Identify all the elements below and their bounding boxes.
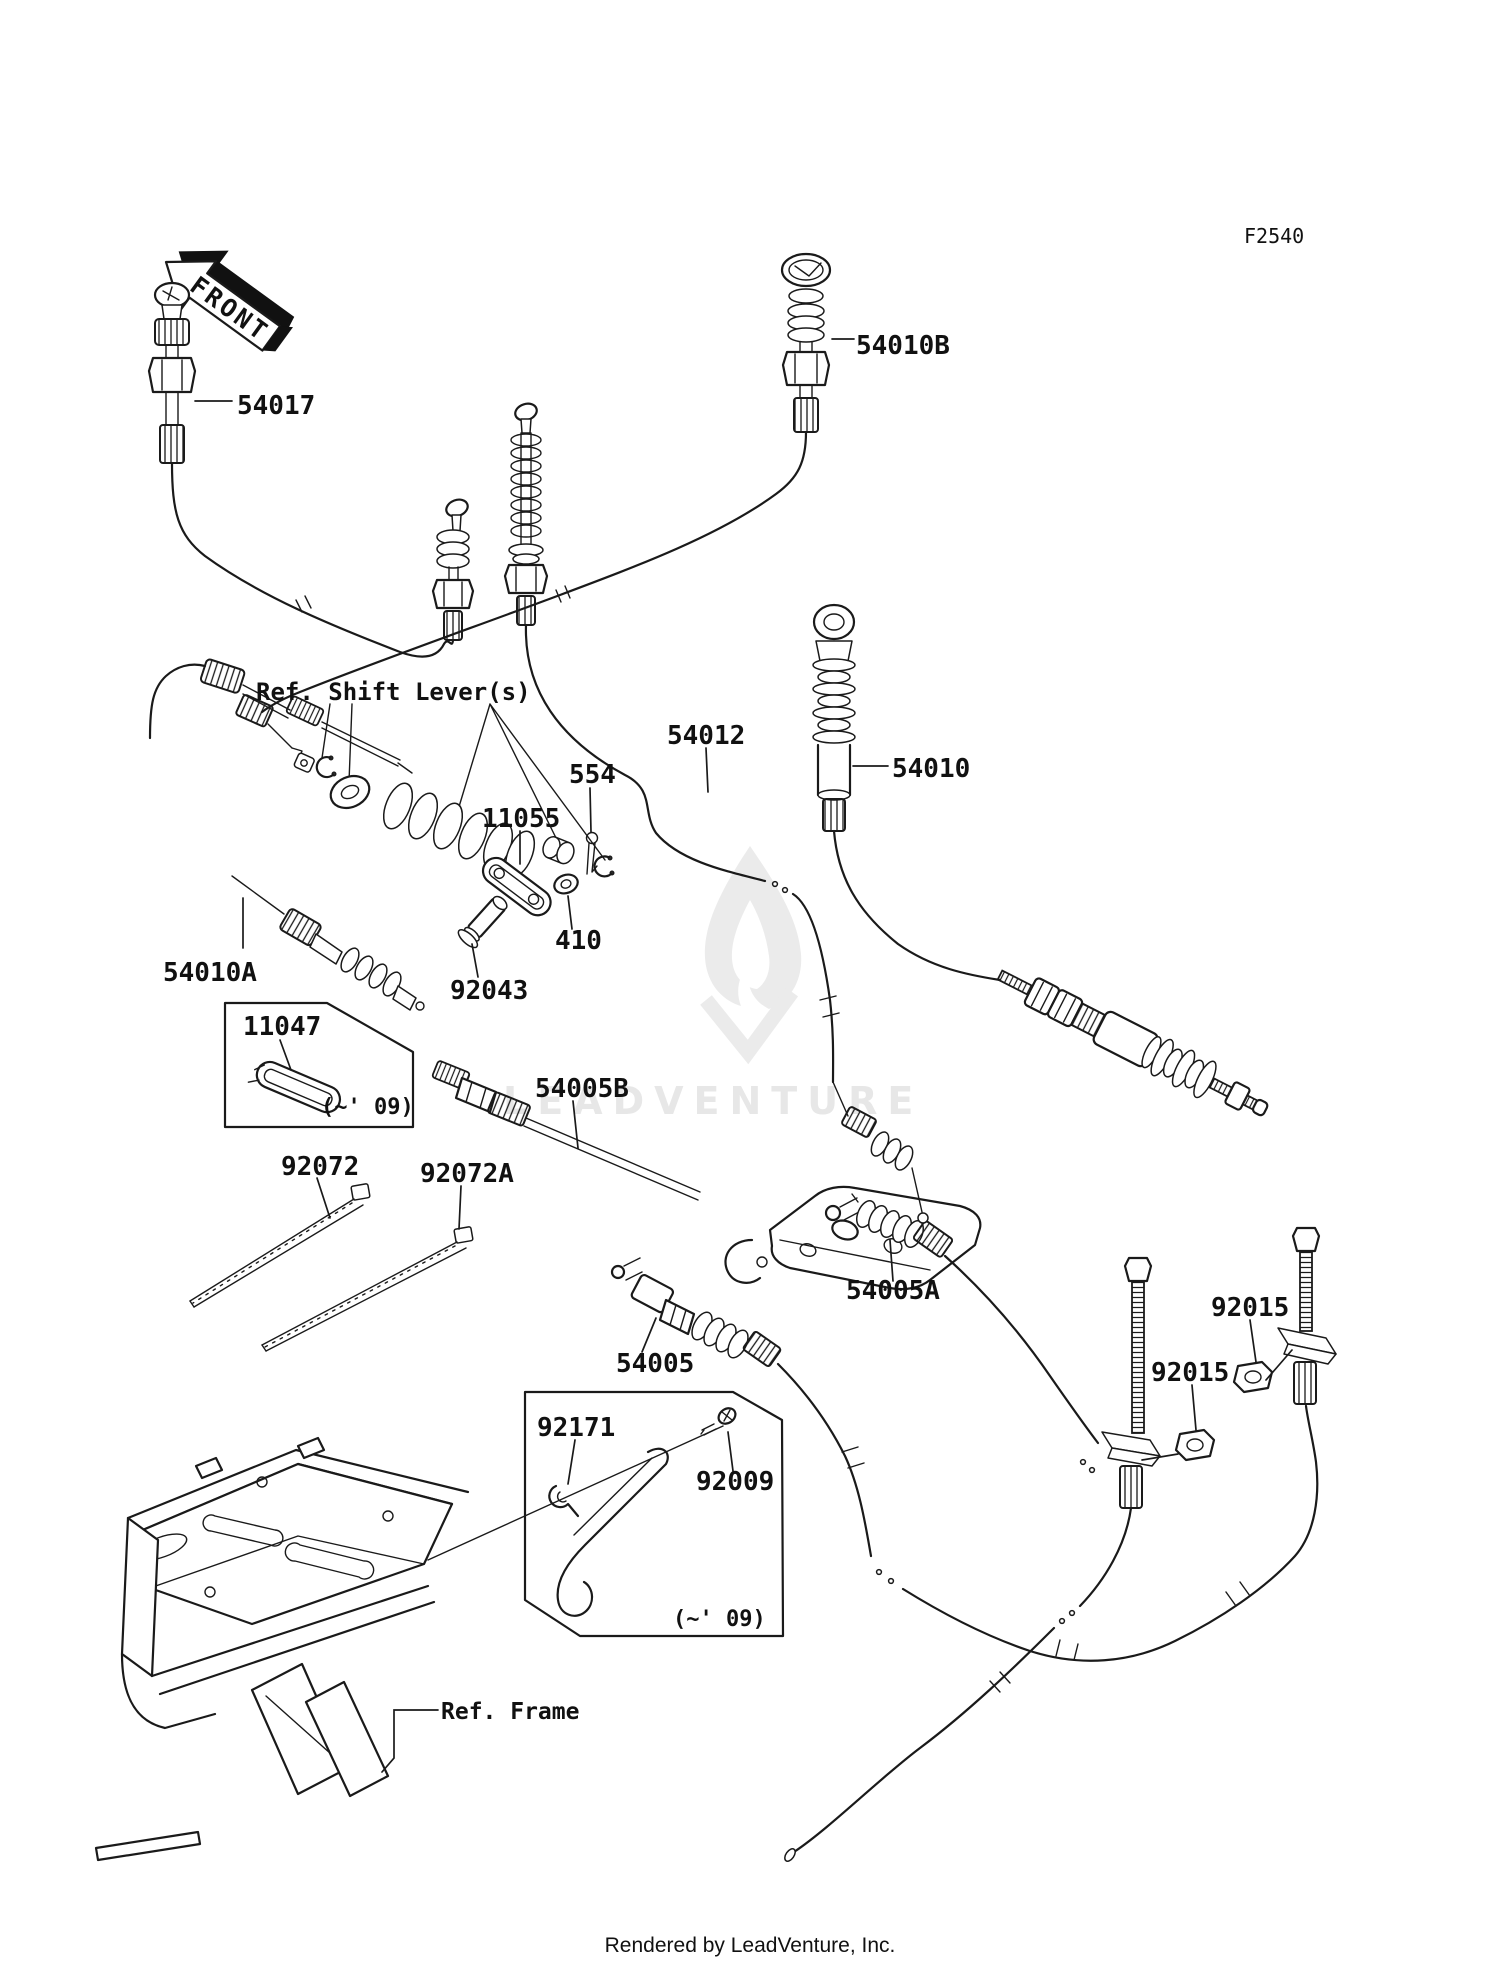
leader-54005 <box>642 1318 656 1352</box>
cable-54010-lower-end <box>991 957 1275 1128</box>
part-label-11047: 11047 <box>243 1012 321 1042</box>
cable-parts-diagram: LEADVENTURE FRONT <box>0 0 1500 1963</box>
cable-54010 <box>813 605 1275 1128</box>
diagram-code: F2540 <box>1244 224 1304 248</box>
watermark-v-icon <box>706 992 792 1052</box>
adjuster-rod-left <box>783 1258 1160 1863</box>
part-label-410: 410 <box>555 926 602 956</box>
part-label-92009: 92009 <box>696 1467 774 1497</box>
leader-54012 <box>706 748 708 792</box>
nut-92015-upper <box>1234 1350 1292 1392</box>
leader-92043 <box>472 944 478 977</box>
part-label-92015-upper: 92015 <box>1211 1293 1289 1323</box>
strap-92072 <box>190 1184 370 1307</box>
part-label-54017: 54017 <box>237 391 315 421</box>
part-label-54010A: 54010A <box>163 958 257 988</box>
part-label-54012: 54012 <box>667 721 745 751</box>
leader-92072 <box>317 1178 330 1218</box>
leader-554 <box>590 788 591 832</box>
frame-sketch <box>96 1438 468 1860</box>
part-label-54010B: 54010B <box>856 331 950 361</box>
part-label-92072: 92072 <box>281 1152 359 1182</box>
leader-410 <box>568 896 572 929</box>
part-label-11055: 11055 <box>482 804 560 834</box>
ref-shift-lever-label: Ref. Shift Lever(s) <box>256 678 531 706</box>
cable-54017 <box>149 283 473 657</box>
leader-92072A <box>459 1186 461 1229</box>
parts-diagram-page: LEADVENTURE FRONT <box>0 0 1500 1963</box>
cotter-pin-554 <box>587 833 598 875</box>
part-label-554: 554 <box>569 760 616 790</box>
part-label-92072A: 92072A <box>420 1159 514 1189</box>
leader-92015-upper <box>1250 1320 1256 1362</box>
part-label-54005: 54005 <box>616 1349 694 1379</box>
footer-credit: Rendered by LeadVenture, Inc. <box>605 1934 896 1957</box>
pin-92043 <box>456 891 513 950</box>
strap-92072A <box>262 1227 473 1351</box>
part-label-92171: 92171 <box>537 1413 615 1443</box>
part-label-54005A: 54005A <box>846 1276 940 1306</box>
part-label-54005B: 54005B <box>535 1074 629 1104</box>
ref-frame-label: Ref. Frame <box>441 1699 579 1725</box>
collar-icon <box>540 834 577 866</box>
leader-ref-frame <box>382 1710 438 1772</box>
shift-lever-parts <box>317 704 614 881</box>
part-label-92015-lower: 92015 <box>1151 1358 1229 1388</box>
leader-92015-lower <box>1192 1385 1196 1430</box>
part-label-92043: 92043 <box>450 976 528 1006</box>
washer-410 <box>552 871 581 896</box>
note-model-year-b: (~' 09) <box>673 1607 766 1632</box>
note-model-year-a: (~' 09) <box>321 1095 414 1120</box>
part-label-54010: 54010 <box>892 754 970 784</box>
washer-icon <box>326 770 375 814</box>
